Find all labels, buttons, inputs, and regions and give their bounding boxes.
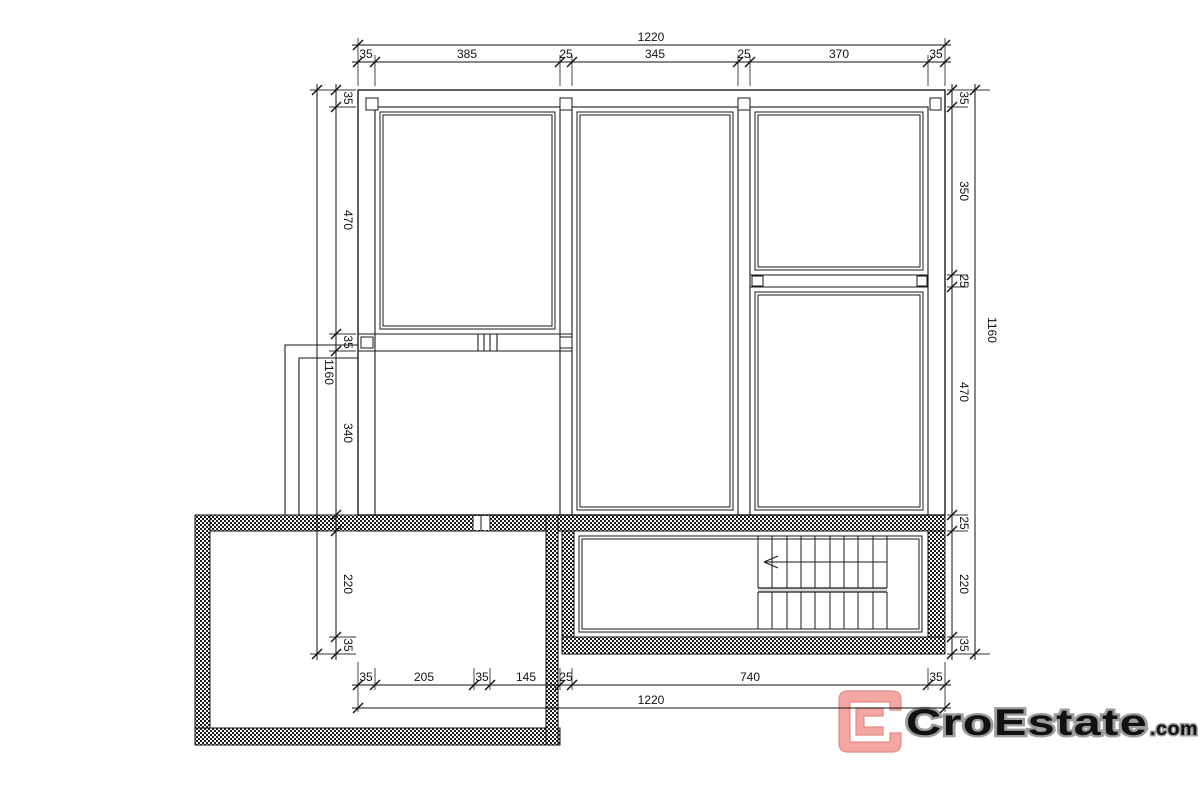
dim-bottom-5: 740 — [740, 670, 760, 684]
dim-left-1: 470 — [341, 210, 355, 230]
garage-wall-right — [546, 515, 558, 745]
dimension-lines — [317, 45, 975, 708]
dim-right-3: 470 — [957, 382, 971, 402]
dim-bottom-4: 25 — [559, 670, 573, 684]
dim-left-3: 340 — [341, 423, 355, 443]
dim-top-2: 25 — [559, 47, 573, 61]
dim-top-overall: 1220 — [638, 30, 665, 44]
dim-top-4: 25 — [737, 47, 751, 61]
dim-bottom-3: 145 — [516, 670, 536, 684]
floor-plan-page: CroEstate .com — [0, 0, 1200, 800]
dimension-ticks — [312, 40, 980, 713]
dim-right-1: 350 — [957, 181, 971, 201]
dim-right-overall: 1160 — [985, 317, 999, 343]
dimension-layer: 1220 35 385 25 345 25 370 35 1160 35 470… — [310, 30, 999, 713]
dim-left-0: 35 — [341, 91, 355, 105]
dim-left-2: 35 — [341, 335, 355, 349]
dim-bottom-2: 35 — [475, 670, 489, 684]
logo-tld-text: .com — [1150, 719, 1198, 740]
dim-right-4: 25 — [957, 516, 971, 530]
dim-right-2: 25 — [957, 274, 971, 288]
hatched-walls — [195, 515, 945, 745]
frame-posts — [361, 98, 941, 348]
wall-mid-band — [195, 515, 945, 531]
extension-lines — [310, 38, 990, 712]
dim-bottom-overall: 1220 — [638, 693, 665, 707]
dim-left-4: 220 — [341, 574, 355, 594]
main-structure-walls — [285, 90, 945, 515]
dim-top-3: 345 — [645, 47, 665, 61]
band-post-detail — [473, 515, 490, 531]
logo-mark-inner-e — [856, 708, 883, 735]
dimension-right: 1160 35 350 25 470 25 220 35 — [957, 91, 999, 652]
dim-left-overall: 1160 — [322, 359, 336, 385]
dim-top-6: 35 — [929, 47, 943, 61]
dim-top-5: 370 — [829, 47, 849, 61]
croestate-logo: CroEstate .com — [839, 691, 1198, 752]
staircase — [758, 536, 887, 629]
dim-right-0: 35 — [957, 91, 971, 105]
dim-bottom-6: 35 — [929, 670, 943, 684]
dim-right-5: 220 — [957, 574, 971, 594]
croestate-logo-mark — [839, 691, 901, 752]
floor-plan-drawing: CroEstate .com — [0, 0, 1200, 800]
lower-section-wall-bottom — [562, 637, 945, 654]
garage-wall-left — [195, 515, 210, 745]
dim-top-0: 35 — [359, 47, 373, 61]
wall-post-detail — [478, 334, 497, 351]
lower-section-wall-right — [928, 531, 945, 654]
dim-left-5: 35 — [341, 638, 355, 652]
room-linings — [380, 112, 923, 632]
lower-section-wall-left — [562, 531, 574, 654]
dim-bottom-1: 205 — [414, 670, 434, 684]
dimension-left: 1160 35 470 35 340 220 35 — [322, 91, 355, 652]
dim-bottom-0: 35 — [359, 670, 373, 684]
logo-mark-ring — [839, 691, 901, 752]
dim-top-1: 385 — [457, 47, 477, 61]
garage-wall-bottom — [195, 728, 560, 745]
stair-direction-arrow — [764, 556, 887, 568]
dim-right-6: 35 — [957, 638, 971, 652]
